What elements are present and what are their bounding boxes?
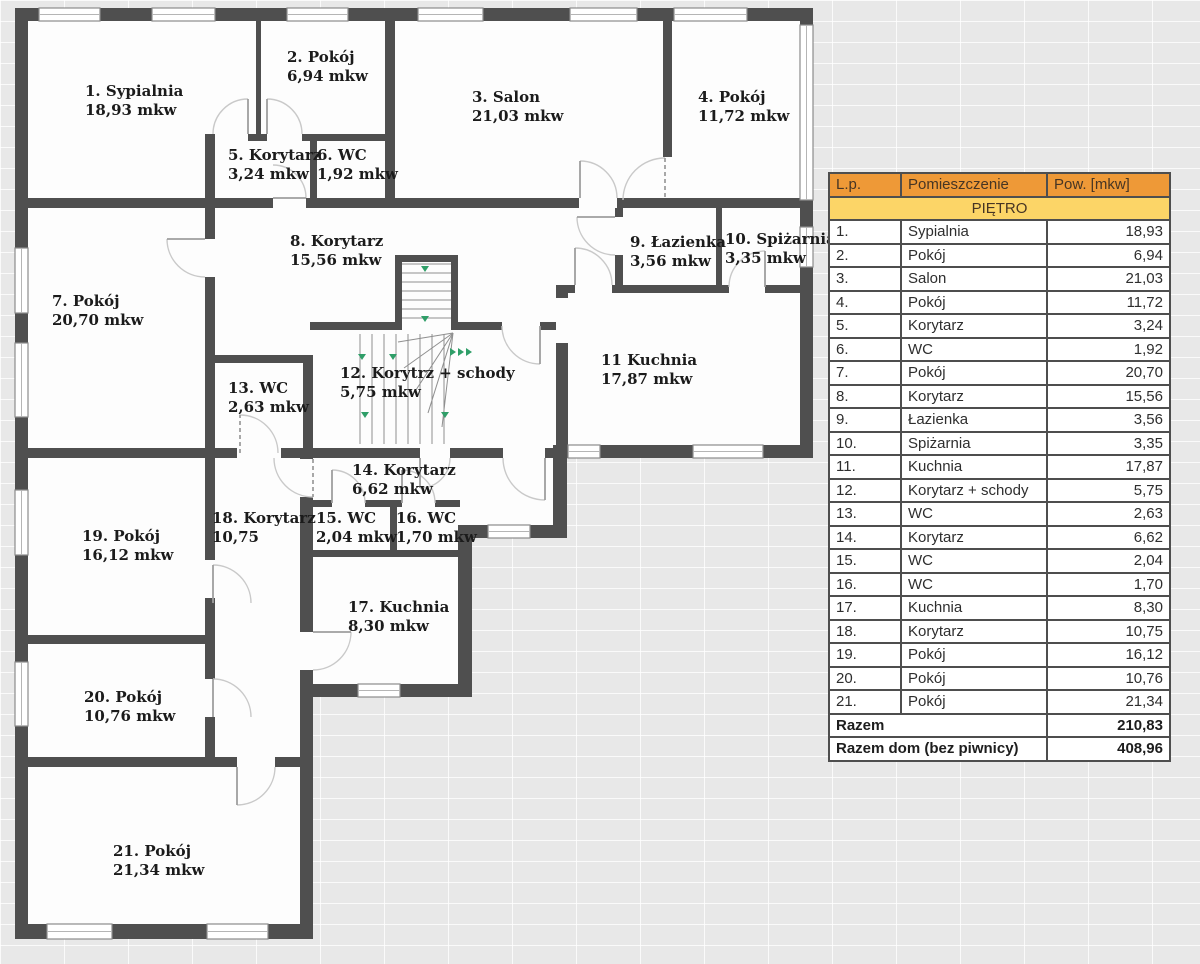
room-area: 17,87 mkw [601,370,697,389]
wall [395,255,458,262]
window [418,8,483,21]
room-label: 16. WC1,70 mkw [396,509,477,547]
room-name-cell: Pokój [901,244,1047,268]
room-label: 8. Korytarz15,56 mkw [290,232,383,270]
table-row: 18.Korytarz10,75 [829,620,1170,644]
room-area: 11,72 mkw [698,107,789,126]
room-name-cell: Korytarz [901,620,1047,644]
wall [313,550,458,557]
window [570,8,637,21]
table-row: 1.Sypialnia18,93 [829,220,1170,244]
wall [15,198,813,208]
table-header-row: L.p. Pomieszczenie Pow. [mkw] [829,173,1170,197]
room-name: 11 Kuchnia [601,351,697,370]
row-number: 8. [829,385,901,409]
room-label: 5. Korytarz3,24 mkw [228,146,321,184]
room-name: 8. Korytarz [290,232,383,251]
room-area: 6,62 mkw [352,480,456,499]
room-area: 3,56 mkw [630,252,726,271]
door-opening [615,217,623,255]
room-area: 8,30 mkw [348,617,449,636]
room-name: 1. Sypialnia [85,82,183,101]
window [47,924,112,939]
wall [553,445,567,538]
window [488,525,530,538]
room-area: 6,94 mkw [287,67,368,86]
door-opening [402,500,435,507]
room-name: 2. Pokój [287,48,368,67]
room-area: 16,12 mkw [82,546,173,565]
table-row: 11.Kuchnia17,87 [829,455,1170,479]
row-number: 16. [829,573,901,597]
wall [451,255,458,330]
table-row: 2.Pokój6,94 [829,244,1170,268]
room-label: 3. Salon21,03 mkw [472,88,563,126]
table-section-row: PIĘTRO [829,197,1170,221]
window [152,8,215,21]
room-area-cell: 10,75 [1047,620,1170,644]
table-row: 16.WC1,70 [829,573,1170,597]
wall [15,8,28,939]
row-number: 9. [829,408,901,432]
wall [205,355,310,363]
table-row: 13.WC2,63 [829,502,1170,526]
room-label: 4. Pokój11,72 mkw [698,88,789,126]
room-name: 13. WC [228,379,309,398]
door-opening [503,448,545,458]
section-header: PIĘTRO [829,197,1170,221]
door-opening [205,239,215,277]
room-name: 12. Korytrz + schody [340,364,515,383]
table-row: 20.Pokój10,76 [829,667,1170,691]
wall [458,525,472,697]
room-area: 20,70 mkw [52,311,143,330]
table-row: 4.Pokój11,72 [829,291,1170,315]
row-number: 13. [829,502,901,526]
table-row: 7.Pokój20,70 [829,361,1170,385]
room-area-cell: 2,04 [1047,549,1170,573]
room-name-cell: Korytarz [901,526,1047,550]
room-name: 19. Pokój [82,527,173,546]
room-name: 16. WC [396,509,477,528]
table-row: 10.Spiżarnia3,35 [829,432,1170,456]
room-area-cell: 6,94 [1047,244,1170,268]
window [693,445,763,458]
wall [205,455,215,765]
room-name-cell: Korytarz [901,314,1047,338]
room-name-cell: Salon [901,267,1047,291]
row-number: 5. [829,314,901,338]
room-label: 20. Pokój10,76 mkw [84,688,175,726]
room-area: 5,75 mkw [340,383,515,402]
wall [256,20,261,138]
window [674,8,747,21]
room-name: 6. WC [317,146,398,165]
room-area: 15,56 mkw [290,251,383,270]
room-name-cell: Sypialnia [901,220,1047,244]
room-label: 18. Korytarz10,75 [212,509,316,547]
room-area: 1,92 mkw [317,165,398,184]
row-number: 3. [829,267,901,291]
room-name: 14. Korytarz [352,461,456,480]
room-area-cell: 16,12 [1047,643,1170,667]
window [15,662,28,726]
room-area-cell: 3,56 [1047,408,1170,432]
room-area: 2,63 mkw [228,398,309,417]
room-name-cell: Kuchnia [901,596,1047,620]
room-area-cell: 3,35 [1047,432,1170,456]
window [287,8,348,21]
room-name-cell: WC [901,502,1047,526]
room-label: 12. Korytrz + schody5,75 mkw [340,364,515,402]
table-row: 3.Salon21,03 [829,267,1170,291]
table-row: 6.WC1,92 [829,338,1170,362]
window [568,445,600,458]
row-number: 1. [829,220,901,244]
room-area-cell: 18,93 [1047,220,1170,244]
room-area: 18,93 mkw [85,101,183,120]
table-row: 12.Korytarz + schody5,75 [829,479,1170,503]
area-table-body: 1.Sypialnia18,932.Pokój6,943.Salon21,034… [829,220,1170,714]
row-number: 19. [829,643,901,667]
door-opening [215,134,248,141]
grand-total-label: Razem dom (bez piwnicy) [829,737,1047,761]
room-name-cell: Pokój [901,643,1047,667]
room-area-cell: 15,56 [1047,385,1170,409]
room-area-cell: 5,75 [1047,479,1170,503]
room-name: 21. Pokój [113,842,204,861]
room-area-cell: 2,63 [1047,502,1170,526]
row-number: 7. [829,361,901,385]
door-opening [332,500,365,507]
room-area-cell: 11,72 [1047,291,1170,315]
table-row: 17.Kuchnia8,30 [829,596,1170,620]
total-label: Razem [829,714,1047,738]
window [39,8,100,21]
room-area-cell: 1,92 [1047,338,1170,362]
room-area: 10,75 [212,528,316,547]
door-opening [237,757,275,767]
table-row: 9.Łazienka3,56 [829,408,1170,432]
room-name: 18. Korytarz [212,509,316,528]
room-area: 21,34 mkw [113,861,204,880]
wall [15,635,205,644]
room-label: 14. Korytarz6,62 mkw [352,461,456,499]
room-name-cell: Spiżarnia [901,432,1047,456]
door-opening [420,448,450,458]
room-name-cell: Korytarz + schody [901,479,1047,503]
grand-total-value: 408,96 [1047,737,1170,761]
row-number: 6. [829,338,901,362]
table-row: 8.Korytarz15,56 [829,385,1170,409]
table-row: 21.Pokój21,34 [829,690,1170,714]
column-header-room: Pomieszczenie [901,173,1047,197]
column-header-area: Pow. [mkw] [1047,173,1170,197]
room-name-cell: Pokój [901,690,1047,714]
row-number: 10. [829,432,901,456]
room-area-cell: 10,76 [1047,667,1170,691]
room-label: 10. Spiżarnia3,35 mkw [725,230,836,268]
room-area: 21,03 mkw [472,107,563,126]
room-label: 6. WC1,92 mkw [317,146,398,184]
column-header-lp: L.p. [829,173,901,197]
room-name: 5. Korytarz [228,146,321,165]
table-row: 5.Korytarz3,24 [829,314,1170,338]
room-area: 3,24 mkw [228,165,321,184]
room-area-cell: 3,24 [1047,314,1170,338]
room-name-cell: Korytarz [901,385,1047,409]
room-name-cell: Łazienka [901,408,1047,432]
room-area: 10,76 mkw [84,707,175,726]
room-label: 9. Łazienka3,56 mkw [630,233,726,271]
window [15,248,28,313]
total-value: 210,83 [1047,714,1170,738]
door-opening [502,322,540,330]
area-table: L.p. Pomieszczenie Pow. [mkw] PIĘTRO 1.S… [828,172,1171,762]
room-label: 21. Pokój21,34 mkw [113,842,204,880]
table-row: 15.WC2,04 [829,549,1170,573]
window [15,343,28,417]
room-area: 1,70 mkw [396,528,477,547]
room-label: 1. Sypialnia18,93 mkw [85,82,183,120]
floorplan-page: 1. Sypialnia18,93 mkw2. Pokój6,94 mkw3. … [0,0,1200,964]
room-name-cell: Pokój [901,667,1047,691]
room-area-cell: 1,70 [1047,573,1170,597]
grand-total-row: Razem dom (bez piwnicy) 408,96 [829,737,1170,761]
row-number: 21. [829,690,901,714]
wall [310,322,400,330]
row-number: 18. [829,620,901,644]
door-opening [300,632,313,670]
row-number: 17. [829,596,901,620]
door-opening [579,198,617,208]
room-area: 3,35 mkw [725,249,836,268]
room-label: 19. Pokój16,12 mkw [82,527,173,565]
room-name-cell: Pokój [901,291,1047,315]
room-name: 15. WC [316,509,397,528]
door-opening [267,134,302,141]
room-name-cell: WC [901,573,1047,597]
room-name-cell: Pokój [901,361,1047,385]
room-label: 11 Kuchnia17,87 mkw [601,351,697,389]
door-opening [556,298,568,343]
table-row: 19.Pokój16,12 [829,643,1170,667]
window [800,25,813,200]
door-opening [575,285,612,293]
room-name: 4. Pokój [698,88,789,107]
room-name: 17. Kuchnia [348,598,449,617]
room-area-cell: 21,34 [1047,690,1170,714]
wall [15,448,567,458]
room-label: 2. Pokój6,94 mkw [287,48,368,86]
room-label: 7. Pokój20,70 mkw [52,292,143,330]
room-area-cell: 17,87 [1047,455,1170,479]
area-table-container: L.p. Pomieszczenie Pow. [mkw] PIĘTRO 1.S… [828,172,1171,762]
row-number: 4. [829,291,901,315]
row-number: 11. [829,455,901,479]
window [15,490,28,555]
door-opening [300,459,313,497]
door-opening [729,285,765,293]
window [207,924,268,939]
room-label: 15. WC2,04 mkw [316,509,397,547]
room-label: 17. Kuchnia8,30 mkw [348,598,449,636]
room-area-cell: 8,30 [1047,596,1170,620]
wall [395,255,402,330]
row-number: 15. [829,549,901,573]
room-name-cell: WC [901,549,1047,573]
wall [205,138,215,208]
room-area-cell: 20,70 [1047,361,1170,385]
row-number: 12. [829,479,901,503]
door-opening [273,198,306,208]
room-area: 2,04 mkw [316,528,397,547]
room-name: 9. Łazienka [630,233,726,252]
door-opening [237,448,281,458]
room-name-cell: WC [901,338,1047,362]
room-name: 10. Spiżarnia [725,230,836,249]
room-name-cell: Kuchnia [901,455,1047,479]
table-row: 14.Korytarz6,62 [829,526,1170,550]
window [358,684,400,697]
row-number: 14. [829,526,901,550]
total-row: Razem 210,83 [829,714,1170,738]
row-number: 2. [829,244,901,268]
row-number: 20. [829,667,901,691]
room-label: 13. WC2,63 mkw [228,379,309,417]
wall [663,20,672,157]
room-area-cell: 21,03 [1047,267,1170,291]
room-name: 7. Pokój [52,292,143,311]
room-area-cell: 6,62 [1047,526,1170,550]
room-name: 20. Pokój [84,688,175,707]
room-name: 3. Salon [472,88,563,107]
